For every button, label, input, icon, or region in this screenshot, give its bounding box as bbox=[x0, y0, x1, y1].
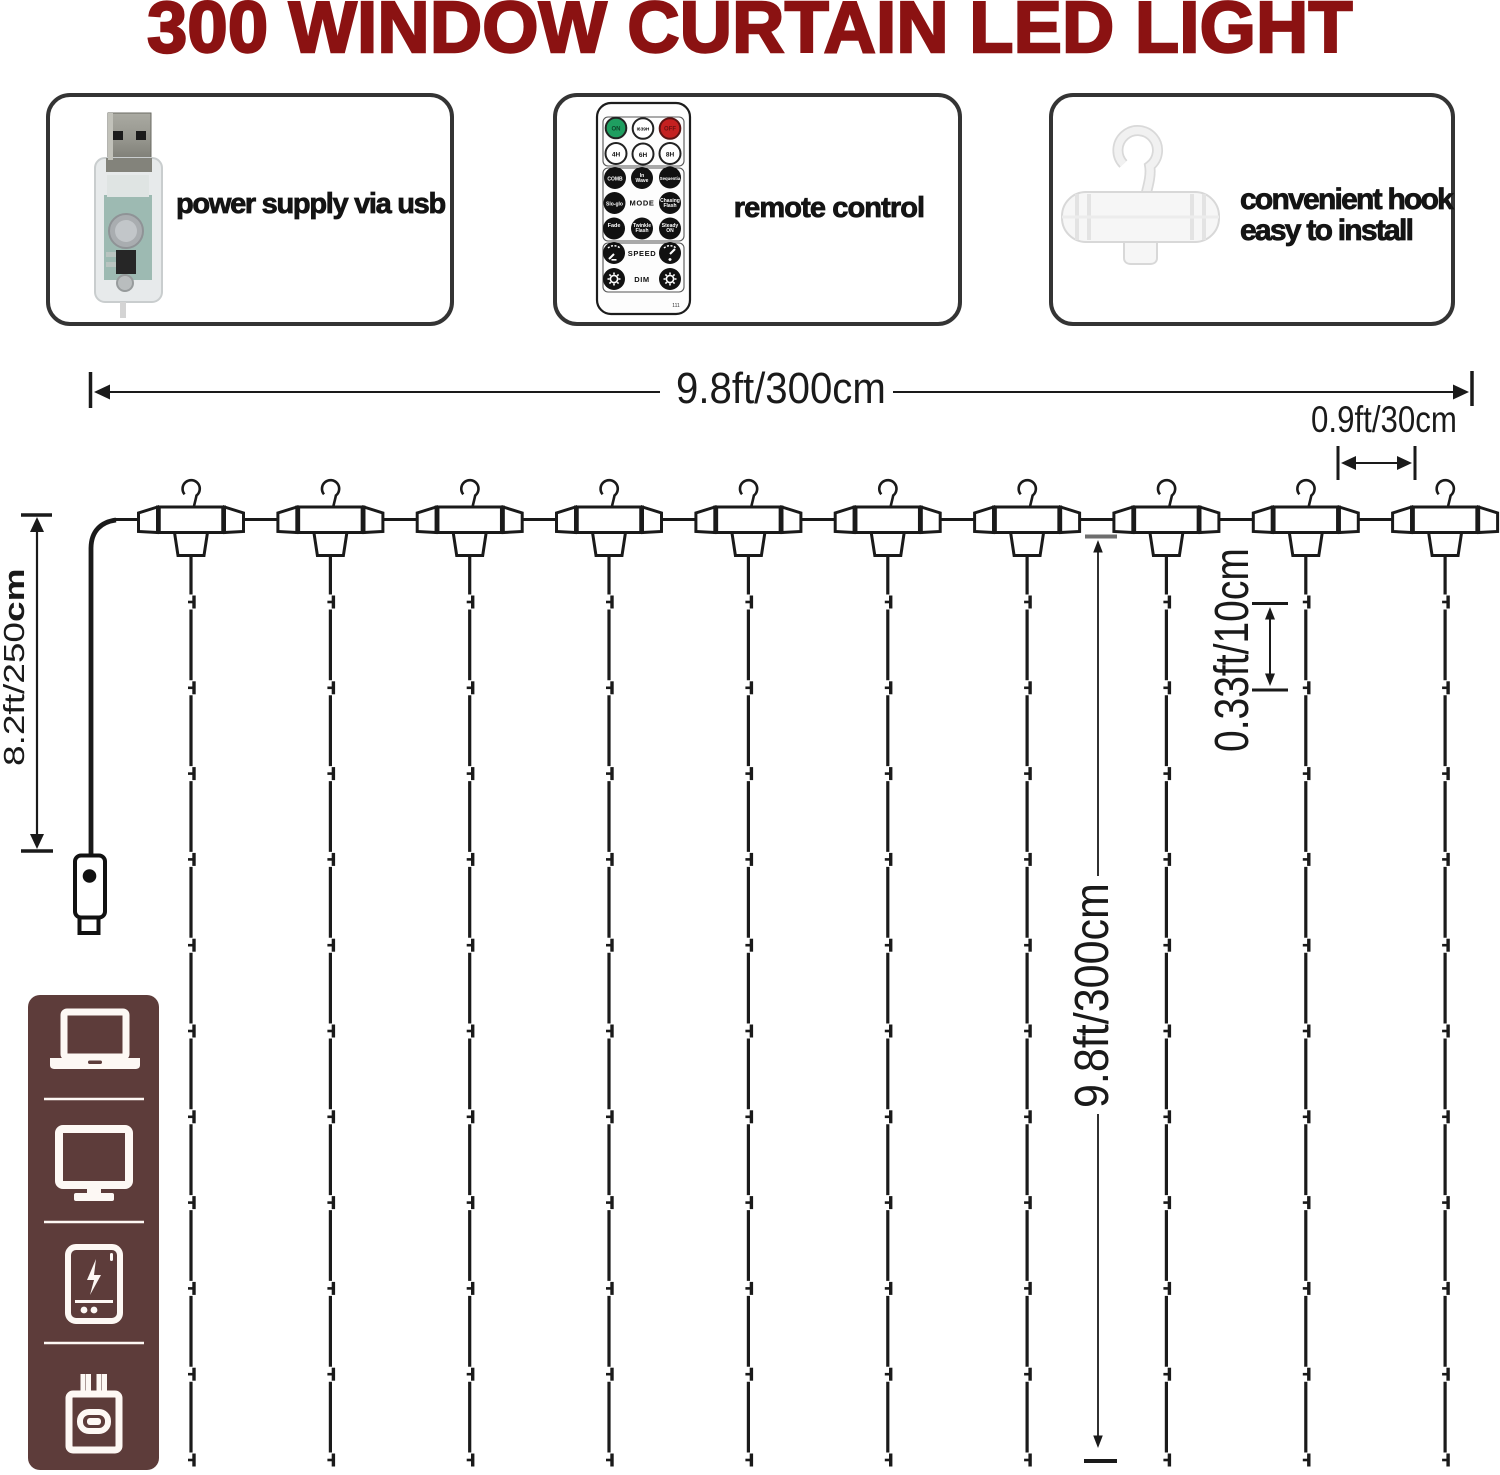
svg-text:0.33ft/10cm: 0.33ft/10cm bbox=[1205, 548, 1259, 752]
svg-text:8.2ft/250cm: 8.2ft/250cm bbox=[0, 569, 31, 766]
svg-text:9.8ft/300cm: 9.8ft/300cm bbox=[676, 363, 886, 412]
svg-text:0.9ft/30cm: 0.9ft/30cm bbox=[1311, 400, 1457, 441]
svg-text:9.8ft/300cm: 9.8ft/300cm bbox=[1065, 883, 1119, 1108]
